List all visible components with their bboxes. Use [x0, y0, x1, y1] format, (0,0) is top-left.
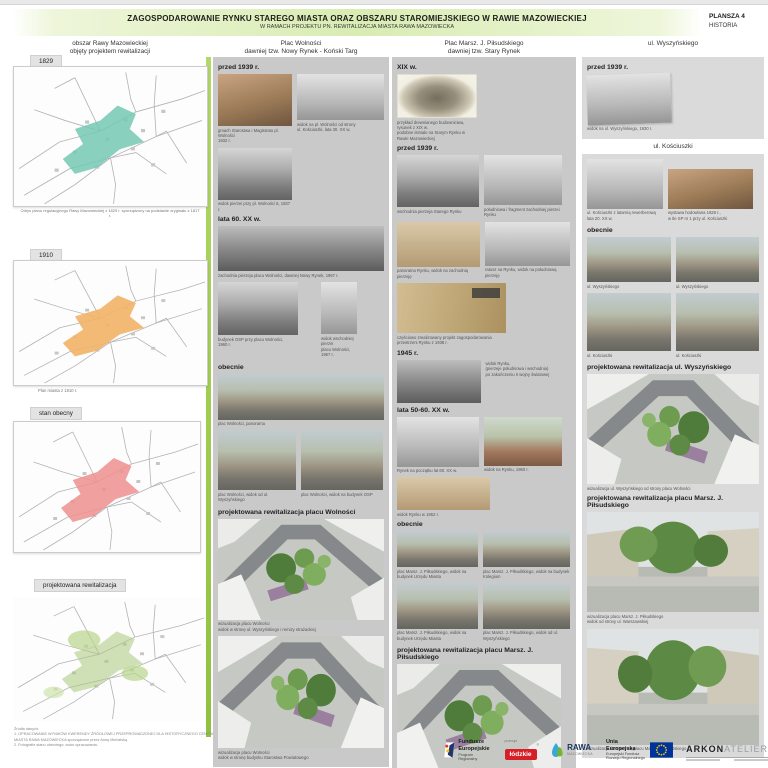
photo-caption: wizualizacja placu Wolności widok w stro…: [218, 750, 384, 761]
render-plac-wolnosci-1: [218, 519, 384, 620]
photo-caption: gmach Starostwa i Magistratu pl. Wolnośc…: [218, 128, 292, 144]
historic-photo-starostwo: [218, 74, 292, 126]
photo-caption: widok pierzei przy pl. Wolności 6, 1937 …: [218, 201, 292, 212]
subheader-kosciuszki: ul. Kościuszki: [582, 143, 764, 150]
photo-caption: zachodnia pierzeja placu Wolności, dawni…: [218, 273, 384, 278]
historic-photo-latarnia: [587, 159, 663, 209]
map-label-stan-obecny: stan obecny: [30, 407, 82, 420]
poster-subtitle: W RAMACH PROJEKTU PN. REWITALIZACJA MIAS…: [12, 24, 702, 30]
historic-photo-panorama-rynku: [397, 222, 480, 267]
section-label-projekt-pilsudskiego: projektowana rewitalizacja placu Marsz. …: [397, 647, 571, 661]
section-label-przed-1939: przed 1939 r.: [587, 64, 759, 71]
logo-unia-europejska: Unia Europejska Europejski Fundusz Rozwo…: [606, 739, 673, 760]
historic-photo-wyszynskiego: [586, 73, 672, 126]
render-plac-wolnosci-2: [218, 636, 384, 748]
header-bar: ZAGOSPODAROWANIE RYNKU STAREGO MIASTA OR…: [12, 9, 702, 36]
column-title-plac-pilsudskiego: Plac Marsz. J. Piłsudskiego dawniej tzw.…: [392, 40, 576, 57]
historic-postcard-1960: [484, 417, 562, 466]
section-label-lata-50-60: lata 50-60. XX w.: [397, 407, 571, 414]
current-photo-urzad-1: [397, 531, 478, 567]
current-photo-wyszynskiego-2: [676, 237, 759, 282]
photo-caption: plac Wolności, widok od ul. Wyszyńskiego: [218, 492, 296, 503]
render-ul-wyszynskiego: [587, 374, 759, 484]
historic-panorama-1967: [218, 226, 384, 271]
top-edge-rule: [0, 0, 768, 5]
kosciuszki-panel: ul. Kościuszki z latarnią rewerberową la…: [582, 154, 764, 758]
section-label-przed-1939: przed 1939 r.: [218, 64, 384, 71]
photo-caption: wizualizacja placu Marsz. J. Piłsudskieg…: [587, 614, 759, 625]
section-label-projekt-wyszynskiego: projektowana rewitalizacja ul. Wyszyński…: [587, 364, 759, 371]
eu-flag-icon: [650, 742, 673, 758]
map-caption-1829: Odrys planu regulacyjnego Rawy Mazowieck…: [20, 208, 200, 218]
logo-rawa-mazowiecka: RAWA MAZOWIECKA: [552, 742, 593, 758]
section-label-przed-1939: przed 1939 r.: [397, 145, 571, 152]
render-fontanna: [587, 629, 759, 745]
map-1910: [13, 260, 208, 386]
current-photo-wyszynskiego: [218, 430, 296, 490]
historic-photo-wschodnia: [321, 282, 357, 334]
photo-caption: plac Marsz. J. Piłsudskiego, widok na bu…: [397, 569, 478, 580]
column-plac-pilsudskiego: Plac Marsz. J. Piłsudskiego dawniej tzw.…: [392, 40, 576, 768]
photo-caption: ul. Wyszyńskiego: [587, 284, 671, 289]
section-label-obecnie: obecnie: [397, 521, 571, 528]
map-caption-1910: Plan miasta z 1910 r.: [38, 388, 77, 393]
current-photo-kolegium: [483, 531, 570, 567]
historic-photo-1952: [397, 477, 490, 510]
logo-fundusze-europejskie: Fundusze Europejskie Program Regionalny: [442, 739, 492, 760]
photo-caption: ul. Kościuszki: [676, 353, 759, 358]
archival-plan-1938: [397, 283, 506, 333]
render-plac-pilsudskiego-widok: [587, 512, 759, 612]
historic-photo-poludniowa-pierzeja: [484, 155, 562, 205]
photo-caption: budynek OSP przy placu Wolności, 1960 r.: [218, 337, 298, 348]
wyszynskiego-top-panel: przed 1939 r. widok na ul. Wyszyńskiego,…: [582, 57, 764, 139]
current-photo-od-wyszynskiego: [483, 583, 570, 629]
photo-caption: wschodnia pierzeja Starego Rynku: [397, 209, 479, 214]
photo-caption: widok na ul. Wyszyńskiego, 1930 r.: [587, 126, 671, 131]
column-plac-wolnosci: Plac Wolności dawniej tzw. Nowy Rynek - …: [213, 40, 389, 767]
photo-caption: panorama Rynku, widok na zachodnią pierz…: [397, 268, 480, 279]
photo-caption: plac Marsz. J. Piłsudskiego, widok od ul…: [483, 630, 570, 641]
historic-photo-pierzeja: [218, 148, 292, 200]
photo-caption: ul. Kościuszki: [587, 353, 671, 358]
historic-photo-rynek-60: [397, 417, 479, 467]
section-label-projekt-pilsudskiego: projektowana rewitalizacja placu Marsz. …: [587, 495, 759, 509]
historic-photo-wschodnia-pierzeja: [397, 155, 479, 207]
plac-pilsudskiego-panel: XIX w. przykład drewnianego budownictwa,…: [392, 57, 576, 768]
current-photo-wyszynskiego-1: [587, 237, 671, 282]
photo-caption: widok Rynku w 1952 r.: [397, 512, 490, 517]
left-column-title: obszar Rawy Mazowieckiej objęty projekte…: [12, 40, 208, 56]
photo-caption: przykład drewnianego budownictwa, rysune…: [397, 120, 475, 142]
historic-photo-osp: [218, 282, 298, 335]
historic-photo-ratusz: [485, 222, 570, 266]
section-label-projekt-wolnosci: projektowana rewitalizacja placu Wolnośc…: [218, 509, 384, 516]
photo-caption: plac Wolności, panorama: [218, 421, 384, 426]
current-panorama: [218, 374, 384, 420]
section-label-obecnie: obecnie: [587, 227, 759, 234]
map-stan-obecny: [13, 421, 201, 553]
photo-caption: ratusz na Rynku, widok na południową pie…: [485, 267, 570, 278]
section-label-xix: XIX w.: [397, 64, 571, 71]
logo-lodzkie: promuje łódzkie®: [505, 739, 540, 761]
photo-caption: widok wschodniej pierzei placu Wolności,…: [321, 336, 357, 358]
photo-caption: plac Marsz. J. Piłsudskiego, widok na bu…: [483, 569, 570, 580]
photo-caption: ul. Kościuszki z latarnią rewerberową la…: [587, 210, 663, 221]
section-label-1945: 1945 r.: [397, 350, 571, 357]
current-photo-urzad-2: [397, 583, 478, 629]
column-title-plac-wolnosci: Plac Wolności dawniej tzw. Nowy Rynek - …: [213, 40, 389, 57]
photo-caption: ul. Wyszyńskiego: [676, 284, 759, 289]
current-photo-osp: [301, 430, 383, 490]
section-label-lata-60: lata 60. XX w.: [218, 216, 384, 223]
photo-caption: widok Rynku, (pierzeje południowa i wsch…: [486, 360, 572, 379]
map-1829: [13, 66, 208, 207]
current-photo-kosciuszki-1: [587, 293, 671, 351]
photo-caption: wystawa hodowlana 1928 r., w tle SP nr 1…: [668, 210, 753, 221]
column-wyszynskiego: ul. Wyszyńskiego przed 1939 r. widok na …: [582, 40, 764, 758]
photo-caption: wizualizacja ul. Wyszyńskiego od strony …: [587, 486, 759, 491]
board-topic-label: HISTORIA: [709, 22, 745, 30]
map-label-projektowana: projektowana rewitalizacja: [34, 579, 126, 592]
plac-wolnosci-panel: przed 1939 r. gmach Starostwa i Magistra…: [213, 57, 389, 767]
photo-caption: Rynek na początku lat 60. XX w.: [397, 468, 479, 473]
photo-caption: plac Wolności, widok na budynek OSP: [301, 492, 383, 497]
photo-caption: wizualizacja placu Wolności widok w stro…: [218, 621, 384, 632]
logo-arkon-atelier: ARKONATELIER: [686, 740, 768, 761]
poster-title: ZAGOSPODAROWANIE RYNKU STAREGO MIASTA OR…: [12, 9, 702, 23]
board-number: PLANSZA 4 HISTORIA: [709, 13, 745, 30]
poster-board: ZAGOSPODAROWANIE RYNKU STAREGO MIASTA OR…: [0, 0, 768, 768]
historic-photo-wystawa: [668, 169, 753, 209]
board-number-label: PLANSZA 4: [709, 13, 745, 22]
historic-photo-widok-plac: [297, 74, 384, 120]
rawa-droplet-icon: [552, 742, 564, 758]
current-photo-kosciuszki-2: [676, 293, 759, 351]
column-title-wyszynskiego: ul. Wyszyńskiego: [582, 40, 764, 57]
section-label-obecnie: obecnie: [218, 364, 384, 371]
engraving-xix: [397, 74, 477, 118]
photo-caption: widok na pl. Wolności od strony ul. Kośc…: [297, 122, 384, 133]
photo-caption: częściowo zrealizowany projekt zagospoda…: [397, 335, 506, 346]
photo-caption: południowa i fragment zachodniej pierzei…: [484, 207, 562, 218]
photo-caption: widok na Rynku, 1960 r.: [484, 467, 562, 472]
sources-footnote: Źródła danych: 1. OPRACOWANIE WYNIKÓW KW…: [14, 727, 218, 748]
photo-caption: plac Marsz. J. Piłsudskiego, widok na bu…: [397, 630, 478, 641]
historic-photo-1945: [397, 360, 481, 403]
footer-logos: Fundusze Europejskie Program Regionalny …: [442, 737, 768, 763]
fe-flag-icon: [442, 741, 455, 759]
map-projektowana: [13, 597, 206, 721]
